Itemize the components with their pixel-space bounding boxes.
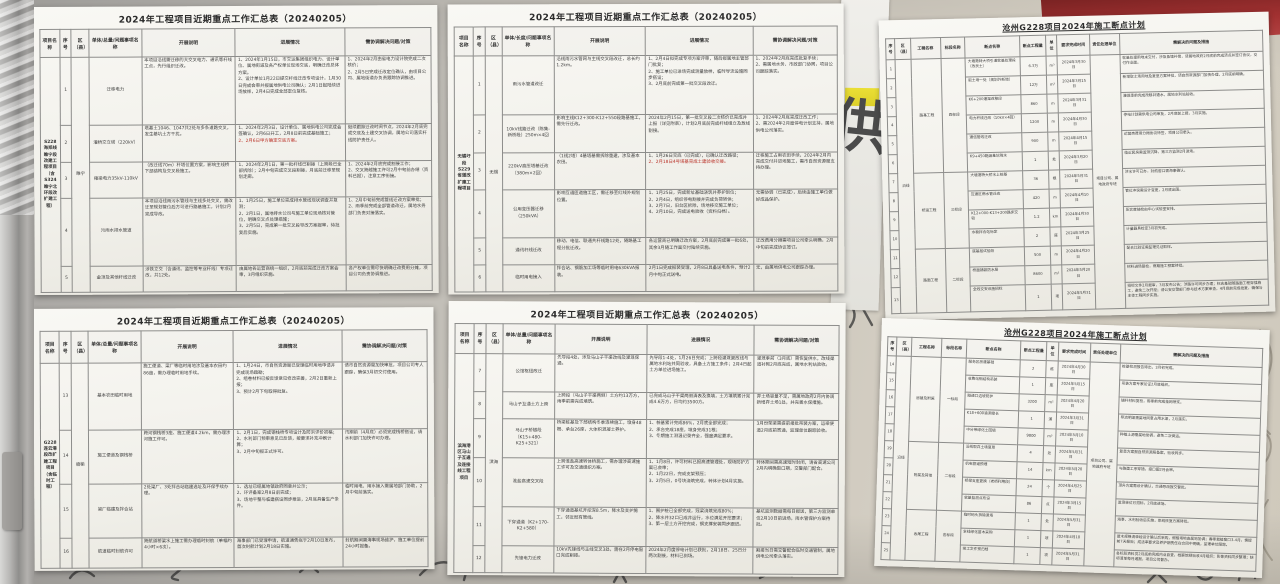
summary-table: 项目名称序号区（县）单体/总量/问题事项名称开展说明进展情况需协调解决问题/对策… <box>40 329 429 569</box>
plan-table: 序号区（县）工程名称标段名称断点名称断点工程量单位要求完成时间责任处理单位需解决… <box>885 30 1269 315</box>
photo-of-wall-with-documents: { "scene": { "banner_char": "供" }, "shee… <box>0 0 1280 584</box>
summary-table: 项目名称序号区（县）单体/总量/问题事项名称开展说明进展情况需协调解决问题/对策… <box>39 27 432 293</box>
sheet-title: 2024年工程项目近期重点工作汇总表（20240205） <box>39 313 427 328</box>
sheet-bottom-right: 沧州G228项目2024年施工断点计划 序号区（县）工程名称标段名称断点名称断点… <box>874 318 1270 578</box>
sheet-bottom-middle: 2024年工程项目近期重点工作汇总表（20240205） 项目名称序号区（县）单… <box>447 301 845 577</box>
foil-wrap <box>0 0 34 215</box>
sheet-title: 2024年工程项目近期重点工作汇总表（20240205） <box>455 307 840 322</box>
summary-table: 项目名称序号区（县）单体/总量/问题事项名称开展说明进展情况需协调解决问题/对策… <box>453 323 839 575</box>
sheet-title: 2024年工程项目近期重点工作汇总表（20240205） <box>454 9 838 23</box>
sheet-top-right: 沧州G228项目2024年施工断点计划 序号区（县）工程名称标段名称断点名称断点… <box>879 12 1276 321</box>
sheet-top-middle: 2024年工程项目近期重点工作汇总表（20240205） 项目名称序号区（县）单… <box>448 3 845 294</box>
plan-table: 序号区（县）工程名称标段名称断点名称断点工程量单位要求完成时间责任处理单位需解决… <box>880 336 1263 572</box>
sheet-title: 2024年工程项目近期重点工作汇总表（20240205） <box>39 11 431 26</box>
summary-table: 项目名称序号区（县）单体/长度/问题事项名称开展说明进展情况需协调解决问题/对策… <box>454 25 839 292</box>
frame-latch <box>2 452 22 530</box>
sheet-bottom-left: 2024年工程项目近期重点工作汇总表（20240205） 项目名称序号区（县）单… <box>33 307 434 571</box>
door-frame-strip <box>0 0 34 584</box>
sheet-top-left: 2024年工程项目近期重点工作汇总表（20240205） 项目名称序号区（县）单… <box>33 5 439 295</box>
